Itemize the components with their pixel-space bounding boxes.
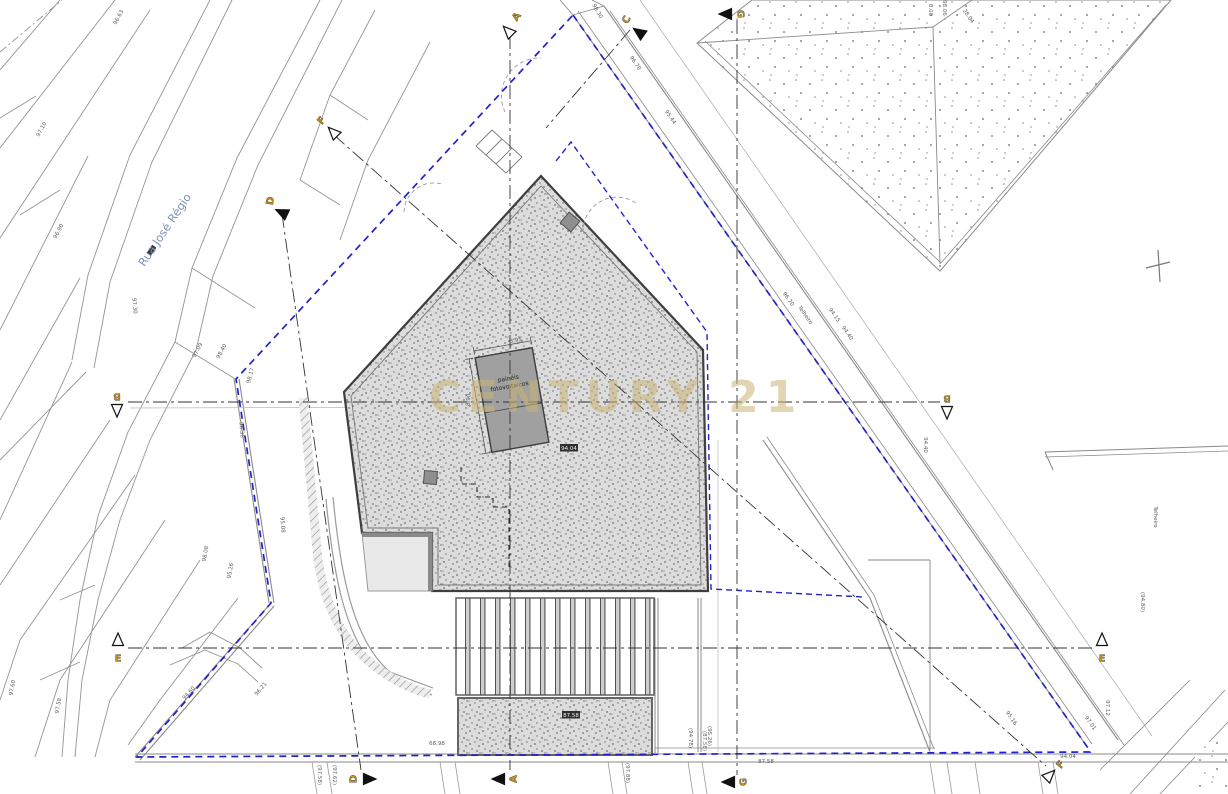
elevation-label: 95.44 (663, 109, 677, 126)
main-building: painéis fotovoltaicos 94.04 87.58 (303, 130, 708, 755)
elevation-label: 94.40 (922, 437, 928, 453)
elevation-label: 97.60 (9, 679, 18, 696)
elevation-label: 97.01 (1083, 715, 1097, 731)
section-letter: B (113, 391, 121, 402)
elevation-label: 96.21 (254, 681, 269, 697)
section-marker-B: B (942, 393, 953, 420)
section-letter: F (1055, 759, 1068, 771)
elevation-label: 95.16 (1004, 710, 1018, 727)
section-marker-E: E (113, 633, 124, 665)
section-arrow-icon (112, 405, 123, 418)
svg-text:94.04: 94.04 (561, 446, 577, 452)
elevation-label: 98.17 (246, 367, 256, 384)
elevation-label: Telheiro (1152, 505, 1158, 528)
elevation-label: 95.08 (278, 517, 285, 534)
section-marker-A: A (499, 10, 523, 39)
chimney-square (423, 470, 437, 484)
elevation-label: 97.30 (130, 298, 137, 315)
level-box-main: 94.04 (560, 444, 578, 452)
section-arrow-icon (719, 9, 732, 20)
section-letter: B (943, 393, 951, 404)
neighbor-roof (697, 0, 1171, 271)
site-plan-canvas: painéis fotovoltaicos 94.04 87.58 (0, 0, 1228, 794)
section-marker-E: E (1097, 633, 1108, 665)
elevation-label: (94.80) (1139, 592, 1145, 612)
plan-drawing: painéis fotovoltaicos 94.04 87.58 (0, 0, 1228, 794)
elevation-label: (97.62) (331, 765, 337, 785)
elevation-label: 68.98 (429, 741, 445, 747)
section-letter: A (509, 775, 520, 783)
elevation-label: 96.70 (781, 291, 795, 308)
section-letter: D (349, 775, 360, 783)
section-arrow-icon (492, 774, 505, 785)
section-arrow-icon (1097, 633, 1108, 646)
section-letter: F (316, 115, 329, 127)
section-arrow-icon (942, 407, 953, 420)
section-arrow-icon (324, 123, 341, 140)
elevation-label: 94.04 (1060, 754, 1076, 760)
section-letter: C (620, 14, 633, 25)
elevation-label: 98.40 (216, 343, 229, 360)
elevation-label: 87.58 (758, 759, 774, 765)
elevation-label: 96.90 (53, 223, 66, 240)
patio (458, 698, 652, 755)
elevation-label: (94.78) (687, 728, 693, 748)
elevation-label: 96.63 (113, 9, 126, 26)
section-letter: D (265, 196, 277, 206)
section-arrow-icon (630, 24, 647, 40)
elevation-label: 97.58 (55, 697, 64, 714)
elevation-label: 97.09 (192, 342, 205, 359)
elevation-label: 8.00 (927, 4, 933, 17)
elevation-label: 98.30 (590, 3, 603, 20)
section-marker-F: F (316, 115, 341, 140)
elevation-label: Telheiro (796, 304, 814, 326)
section-arrow-icon (499, 22, 516, 39)
elevation-label: (97.88) (624, 763, 630, 783)
section-marker-D: D (265, 196, 290, 220)
elevation-label: 95.26 (227, 562, 236, 579)
elevation-label: 97.10 (36, 121, 49, 138)
section-arrow-icon (273, 205, 289, 220)
section-marker-F: F (1042, 759, 1067, 783)
elevation-label: 94.15 (827, 307, 841, 324)
elevation-label: 94.40 (840, 325, 854, 342)
svg-text:87.58: 87.58 (563, 713, 579, 719)
section-arrow-icon (722, 777, 735, 788)
elevation-label: 97.12 (1104, 700, 1110, 716)
section-marker-A: A (492, 774, 520, 785)
level-box-patio: 87.58 (562, 711, 580, 719)
section-marker-G: G (722, 777, 750, 788)
elevation-label: 94.60 (182, 685, 197, 701)
elevation-label: 98.06 (941, 0, 947, 16)
section-marker-D: D (349, 774, 377, 785)
watermark: CENTURY 21 (429, 372, 804, 423)
section-letter: E (1099, 654, 1106, 665)
elevation-label: (97.58) (316, 765, 322, 785)
elevation-label: 96.36 (237, 422, 244, 439)
right-side-walls (1045, 250, 1228, 794)
elevation-label: 98.08 (202, 545, 211, 562)
section-arrow-icon (113, 633, 124, 646)
section-arrow-icon (364, 774, 377, 785)
section-letter: G (735, 10, 746, 18)
entrance-stairs (476, 130, 522, 173)
ramp-stripes (456, 598, 654, 695)
section-letter: A (510, 10, 524, 23)
section-marker-B: B (112, 391, 123, 418)
elevation-label: (95.26) (706, 726, 712, 746)
terrace (362, 533, 432, 591)
sidewalk-ticks (312, 762, 1058, 794)
street-name: Rua José Régio (135, 191, 194, 269)
section-line-D (282, 214, 361, 770)
section-letter: G (739, 778, 750, 786)
section-letter: E (115, 654, 122, 665)
